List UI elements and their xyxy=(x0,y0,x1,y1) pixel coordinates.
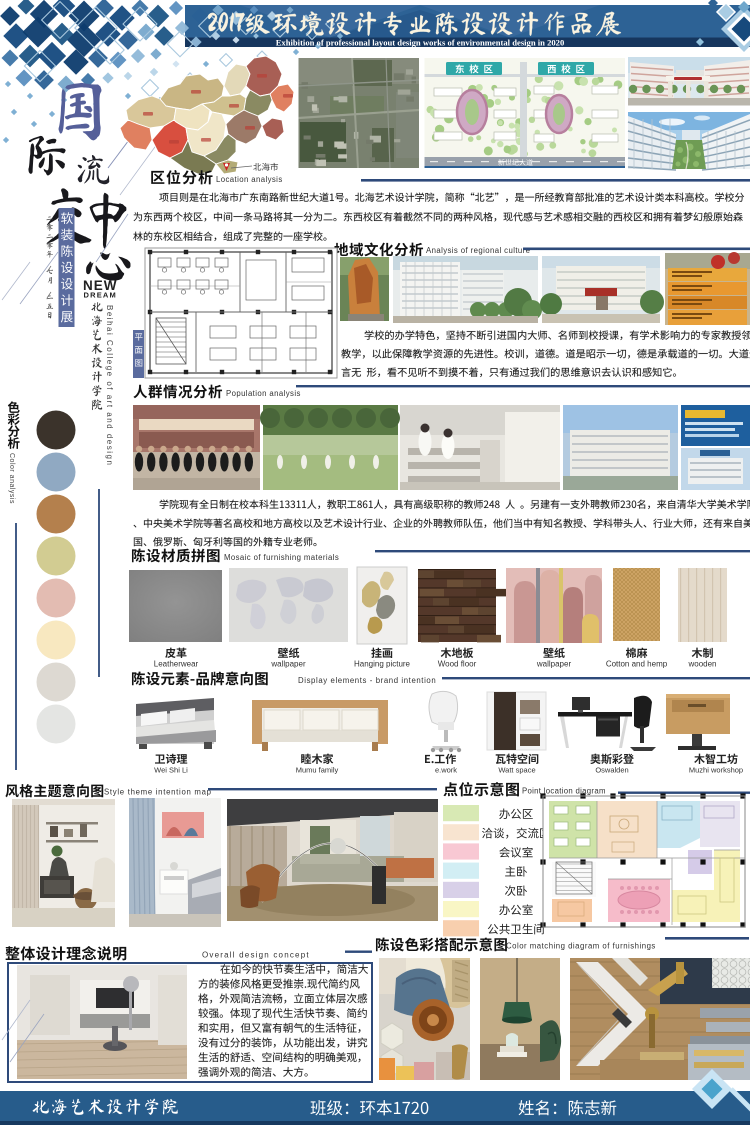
svg-text:Display elements - brand inten: Display elements - brand intention xyxy=(298,676,436,685)
svg-text:Mumu family: Mumu family xyxy=(296,766,339,775)
svg-text:Overall design concept: Overall design concept xyxy=(202,951,310,960)
svg-text:e.work: e.work xyxy=(435,766,457,775)
svg-text:Cotton and hemp: Cotton and hemp xyxy=(606,660,668,669)
svg-text:Color analysis: Color analysis xyxy=(8,453,15,504)
svg-text:Wood floor: Wood floor xyxy=(438,660,477,669)
svg-text:Oswalden: Oswalden xyxy=(595,766,628,775)
svg-text:Location analysis: Location analysis xyxy=(216,175,283,184)
svg-text:wooden: wooden xyxy=(687,660,716,669)
svg-text:DREAM: DREAM xyxy=(84,291,118,300)
svg-text:Population analysis: Population analysis xyxy=(226,389,301,398)
svg-text:Analysis of regional culture: Analysis of regional culture xyxy=(426,246,530,255)
svg-text:Leatherwear: Leatherwear xyxy=(154,660,199,669)
svg-text:Watt space: Watt space xyxy=(498,766,535,775)
svg-text:Muzhi workshop: Muzhi workshop xyxy=(689,766,743,775)
svg-text:wallpaper: wallpaper xyxy=(536,660,572,669)
svg-text:Exhibition of professional lay: Exhibition of professional layout design… xyxy=(276,37,565,47)
svg-text:Beihai College of art and desi: Beihai College of art and design xyxy=(105,305,114,466)
svg-text:Style theme intention map: Style theme intention map xyxy=(104,788,212,797)
svg-text:Color matching diagram of furn: Color matching diagram of furnishings xyxy=(506,942,656,951)
svg-text:Hanging picture: Hanging picture xyxy=(354,660,411,669)
svg-text:Mosaic of furnishing materials: Mosaic of furnishing materials xyxy=(224,553,339,562)
svg-text:wallpaper: wallpaper xyxy=(270,660,306,669)
svg-text:Wei Shi Li: Wei Shi Li xyxy=(154,766,188,775)
svg-text:Point location diagram: Point location diagram xyxy=(522,787,606,796)
